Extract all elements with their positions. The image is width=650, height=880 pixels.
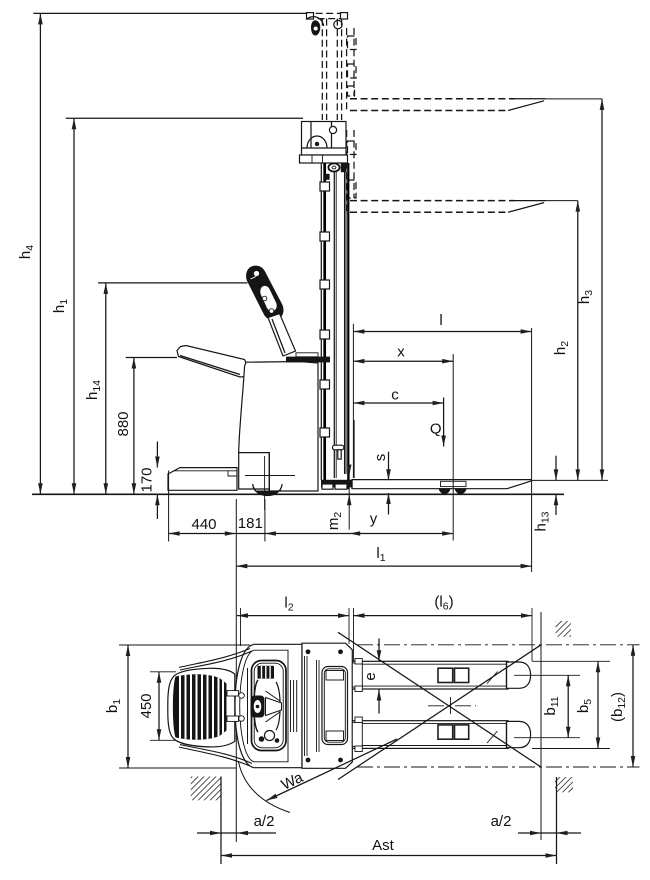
svg-text:y: y — [370, 511, 378, 528]
svg-text:170: 170 — [139, 467, 156, 492]
svg-text:e: e — [362, 672, 379, 680]
svg-text:Ast: Ast — [372, 837, 395, 854]
svg-text:181: 181 — [238, 515, 263, 532]
svg-text:a/2: a/2 — [254, 813, 275, 830]
svg-text:440: 440 — [191, 516, 216, 533]
svg-text:Q: Q — [430, 421, 442, 438]
svg-text:c: c — [391, 387, 399, 404]
svg-text:s: s — [372, 454, 389, 462]
svg-text:l: l — [439, 312, 442, 329]
svg-text:a/2: a/2 — [491, 813, 512, 830]
svg-text:880: 880 — [115, 411, 132, 436]
svg-text:x: x — [397, 344, 405, 361]
svg-text:450: 450 — [138, 693, 155, 718]
